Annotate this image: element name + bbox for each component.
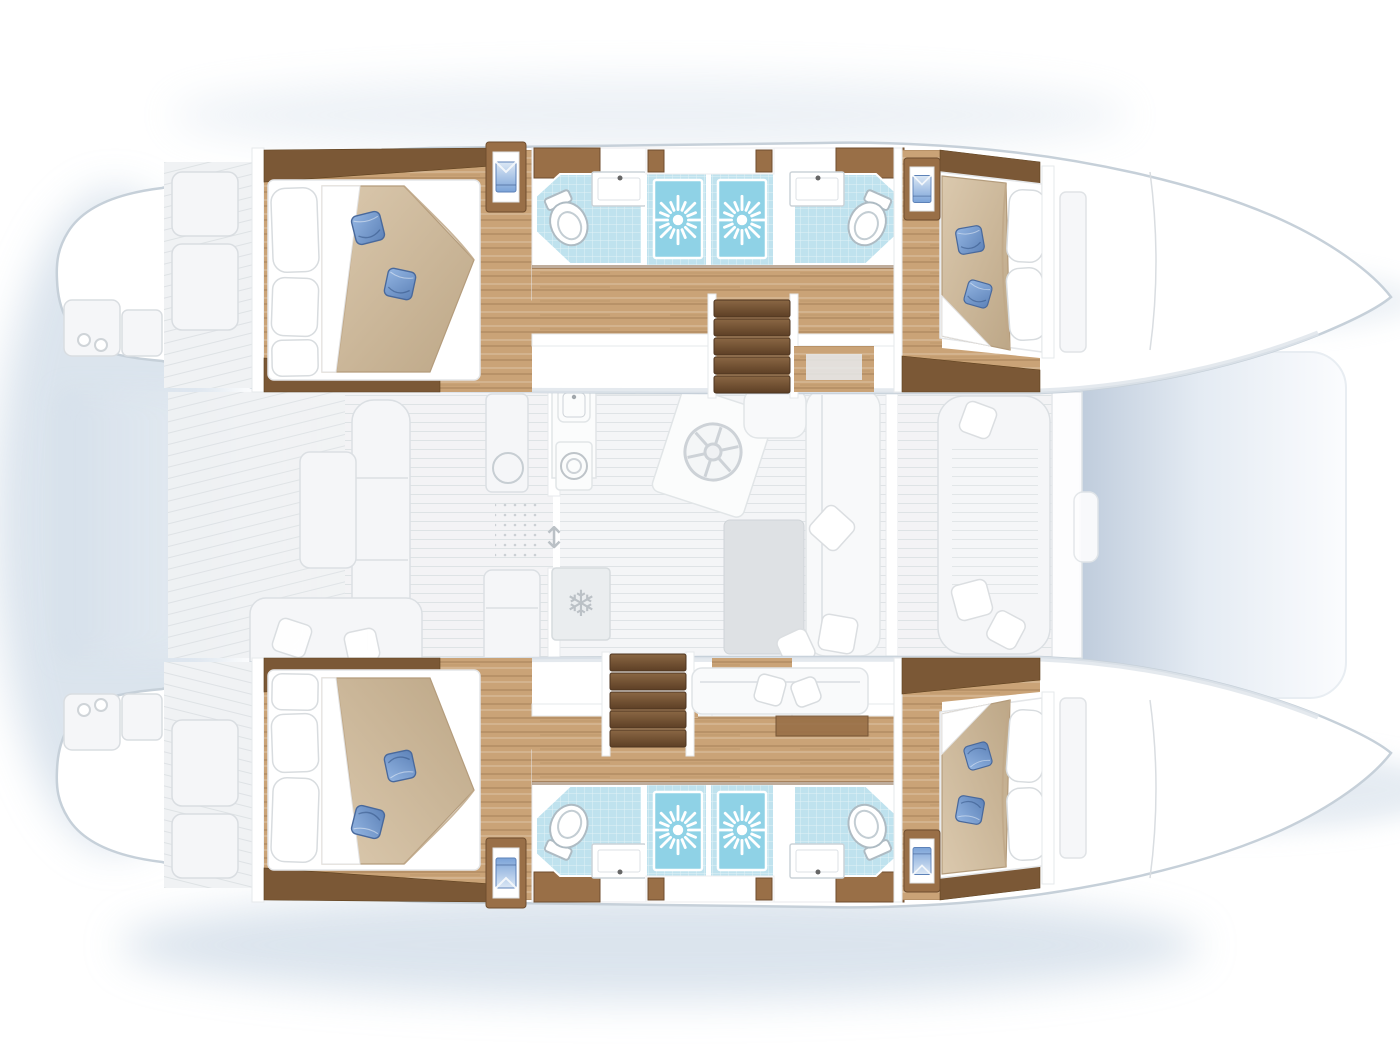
- stair-tread: [610, 654, 686, 671]
- shower-drain-icon: [718, 196, 766, 244]
- stair-tread: [714, 357, 790, 374]
- stern-cleat: [95, 339, 107, 351]
- stairs-port: Companionway stairs from salon down into…: [708, 294, 798, 398]
- shirt-icon: [496, 162, 516, 192]
- shower-cabin: Separate shower cabin with drain rose: [710, 172, 774, 266]
- stair-tread: [714, 300, 790, 317]
- catamaran-floorplan: Catamaran interior deck plan, bows to th…: [0, 0, 1400, 1050]
- trampoline: Bow trampoline net: [1080, 352, 1346, 698]
- shower-cabin: Separate shower cabin with drain rose: [646, 172, 710, 266]
- bed-pillow-white: [271, 277, 319, 337]
- bed-pillow-blue-icon: [383, 267, 416, 300]
- galley-appliance-icon: Front loading oven: [556, 442, 592, 490]
- stair-tread: [714, 338, 790, 355]
- sofa-pillow: [817, 613, 859, 655]
- stair-tread: [610, 692, 686, 709]
- stern-cleat: [78, 334, 90, 346]
- cockpit-table: [300, 452, 356, 568]
- stair-tread: [610, 673, 686, 690]
- chart-desk: Wood landing beside companionway: [794, 346, 874, 392]
- shirt-icon: [913, 176, 931, 203]
- stairs-starboard: Companionway stairs from salon down into…: [602, 652, 694, 756]
- foredeck-lounge: [938, 396, 1050, 654]
- outdoor-cabinet: [486, 394, 528, 492]
- bed-pillow-blue-icon: [955, 225, 985, 255]
- bed-pillow-white: [271, 187, 320, 273]
- bed-pillow-white: [1006, 189, 1046, 263]
- cockpit: Aft cockpit with benches and table (ghos…: [168, 392, 553, 680]
- bed-pillow-white: [1006, 267, 1047, 341]
- crossbeam-notch: [1074, 492, 1098, 562]
- bed-pillow-blue-icon: [350, 210, 385, 245]
- stair-tread: [610, 711, 686, 728]
- snowflake-icon: ❄: [566, 584, 596, 625]
- stair-tread: [610, 730, 686, 747]
- door-mat: [495, 500, 539, 562]
- stair-tread: [714, 319, 790, 336]
- bed-pillow-white: [272, 340, 319, 377]
- salon-front-wall: [886, 392, 898, 656]
- aft-deck-lockers: [164, 162, 254, 388]
- door-slide-arrow-icon: ↕: [541, 521, 566, 556]
- shower-drain-icon: [654, 196, 702, 244]
- berth-pillow: [753, 673, 787, 707]
- aft-cabin: Aft double cabin with island bed and blu…: [264, 142, 532, 392]
- hanging-locker-icon: Hanging locker with folded shirt: [486, 142, 526, 212]
- foredeck: Forward cockpit lounge seat: [898, 392, 1098, 658]
- washbasin-icon: [790, 172, 844, 206]
- washbasin-icon: [592, 172, 646, 206]
- refrigerator: Refrigerator ❄: [552, 568, 610, 640]
- stair-tread: [714, 376, 790, 393]
- hanging-locker-icon: Hanging locker with folded shirt: [904, 158, 940, 220]
